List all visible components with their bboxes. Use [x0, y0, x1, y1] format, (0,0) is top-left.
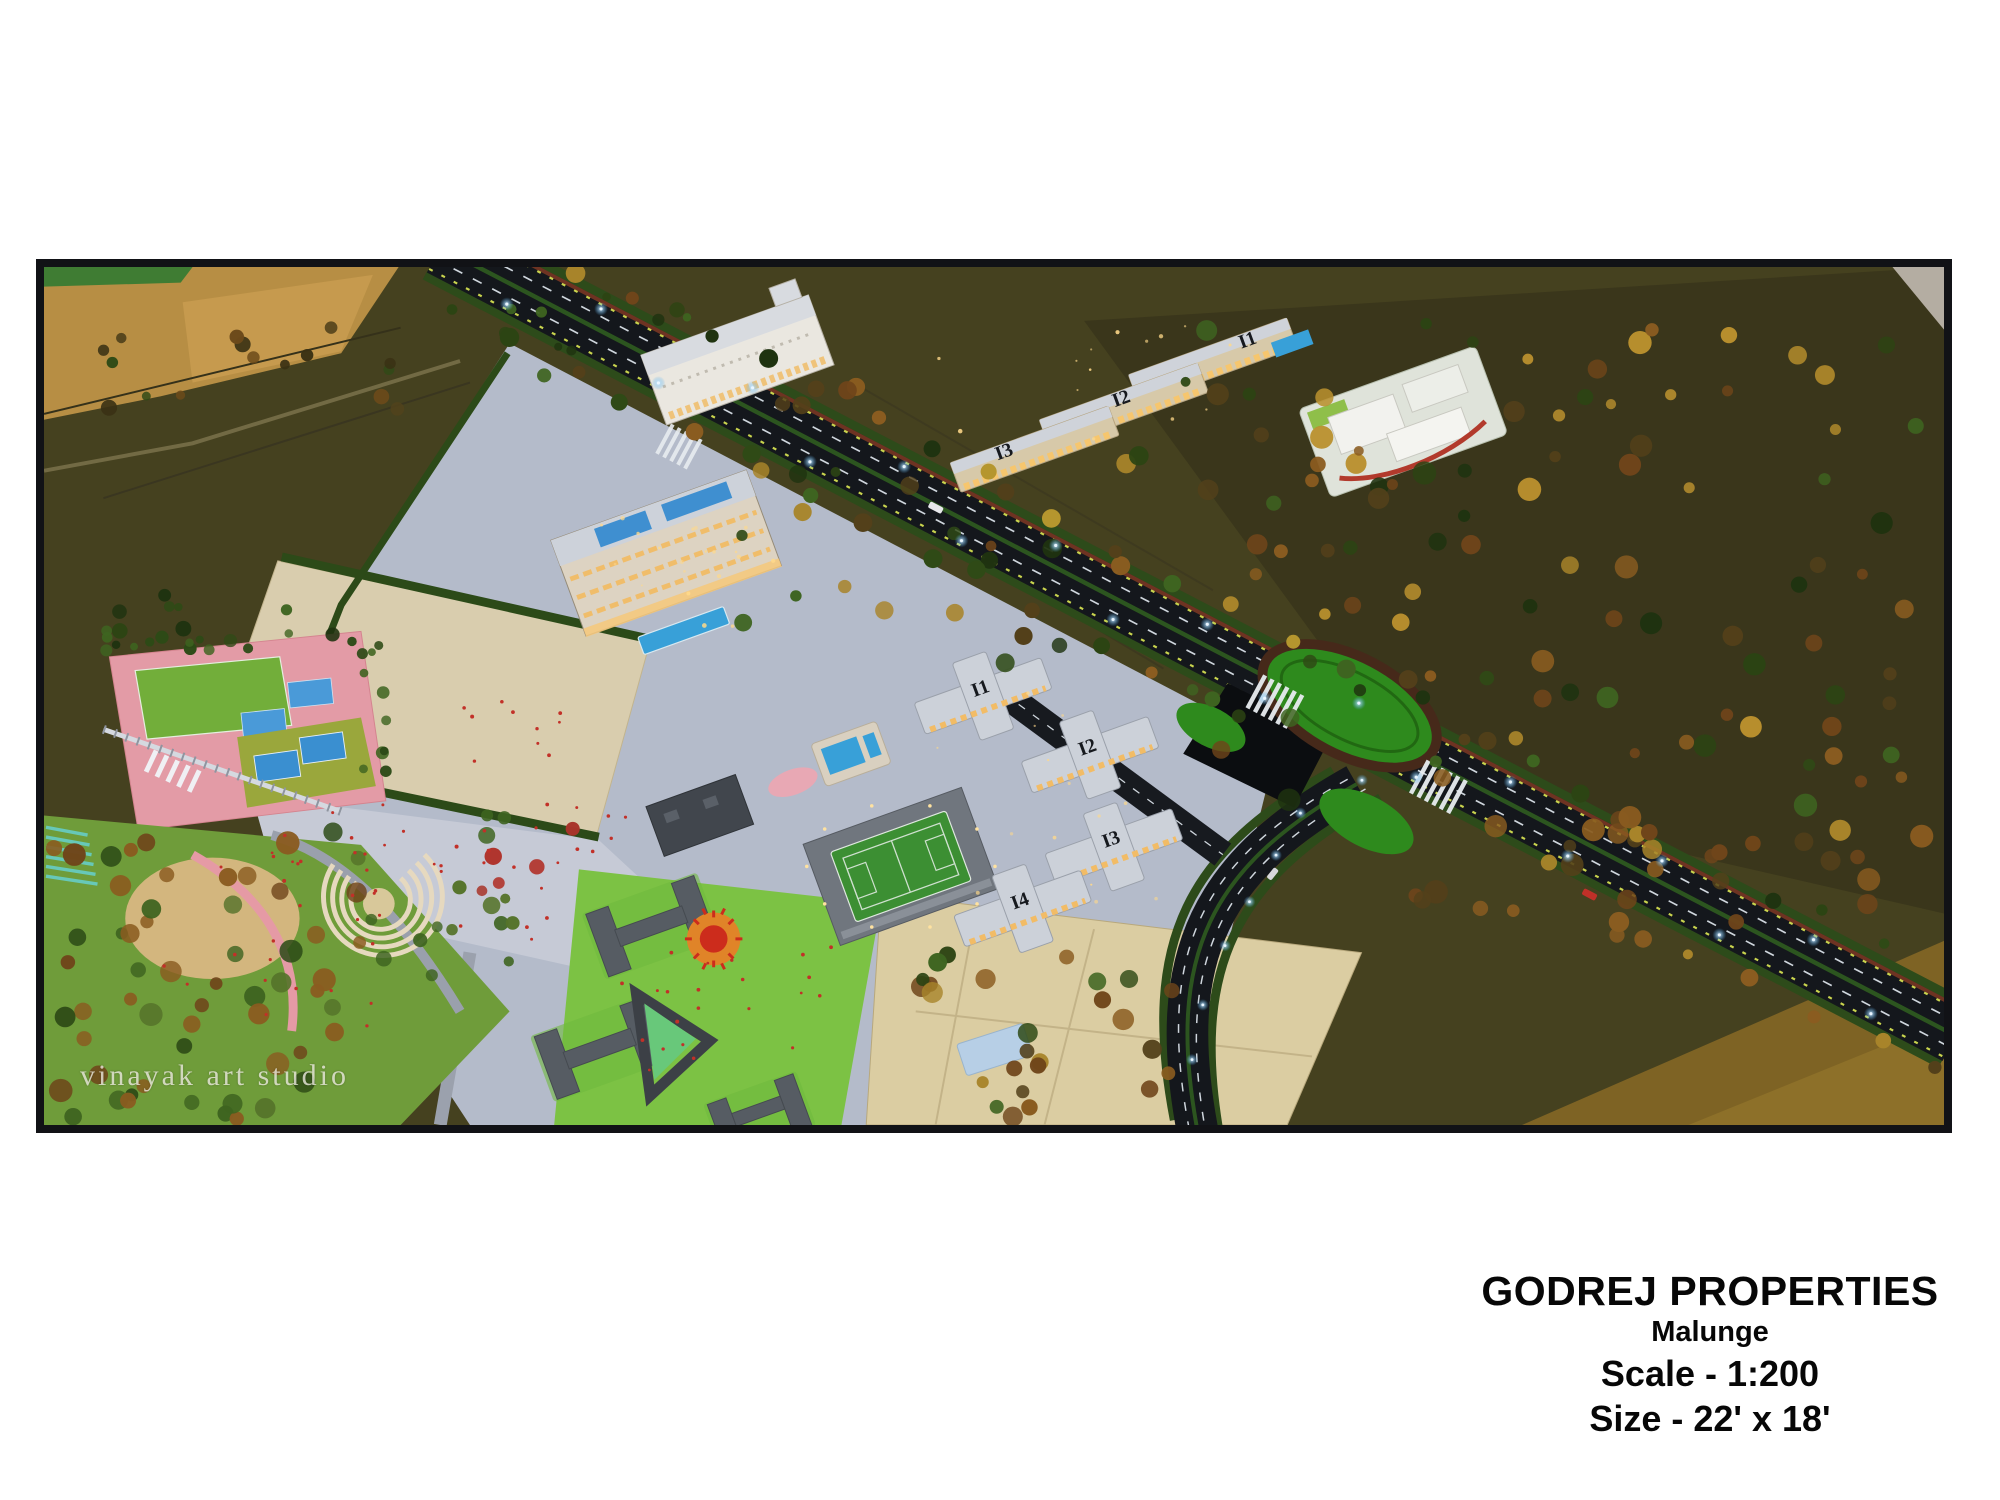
- caption-block: GODREJ PROPERTIES Malunge Scale - 1:200 …: [1420, 1268, 2000, 1441]
- model-scene: I1 I2 I3: [44, 267, 1944, 1125]
- project-name: Malunge: [1420, 1314, 2000, 1351]
- page: I1 I2 I3: [0, 0, 2000, 1500]
- model-photo: I1 I2 I3: [36, 259, 1952, 1133]
- sports-complex: [109, 631, 385, 830]
- developer-name: GODREJ PROPERTIES: [1420, 1268, 2000, 1314]
- scale-label: Scale - 1:200: [1420, 1351, 2000, 1396]
- size-label: Size - 22' x 18': [1420, 1396, 2000, 1441]
